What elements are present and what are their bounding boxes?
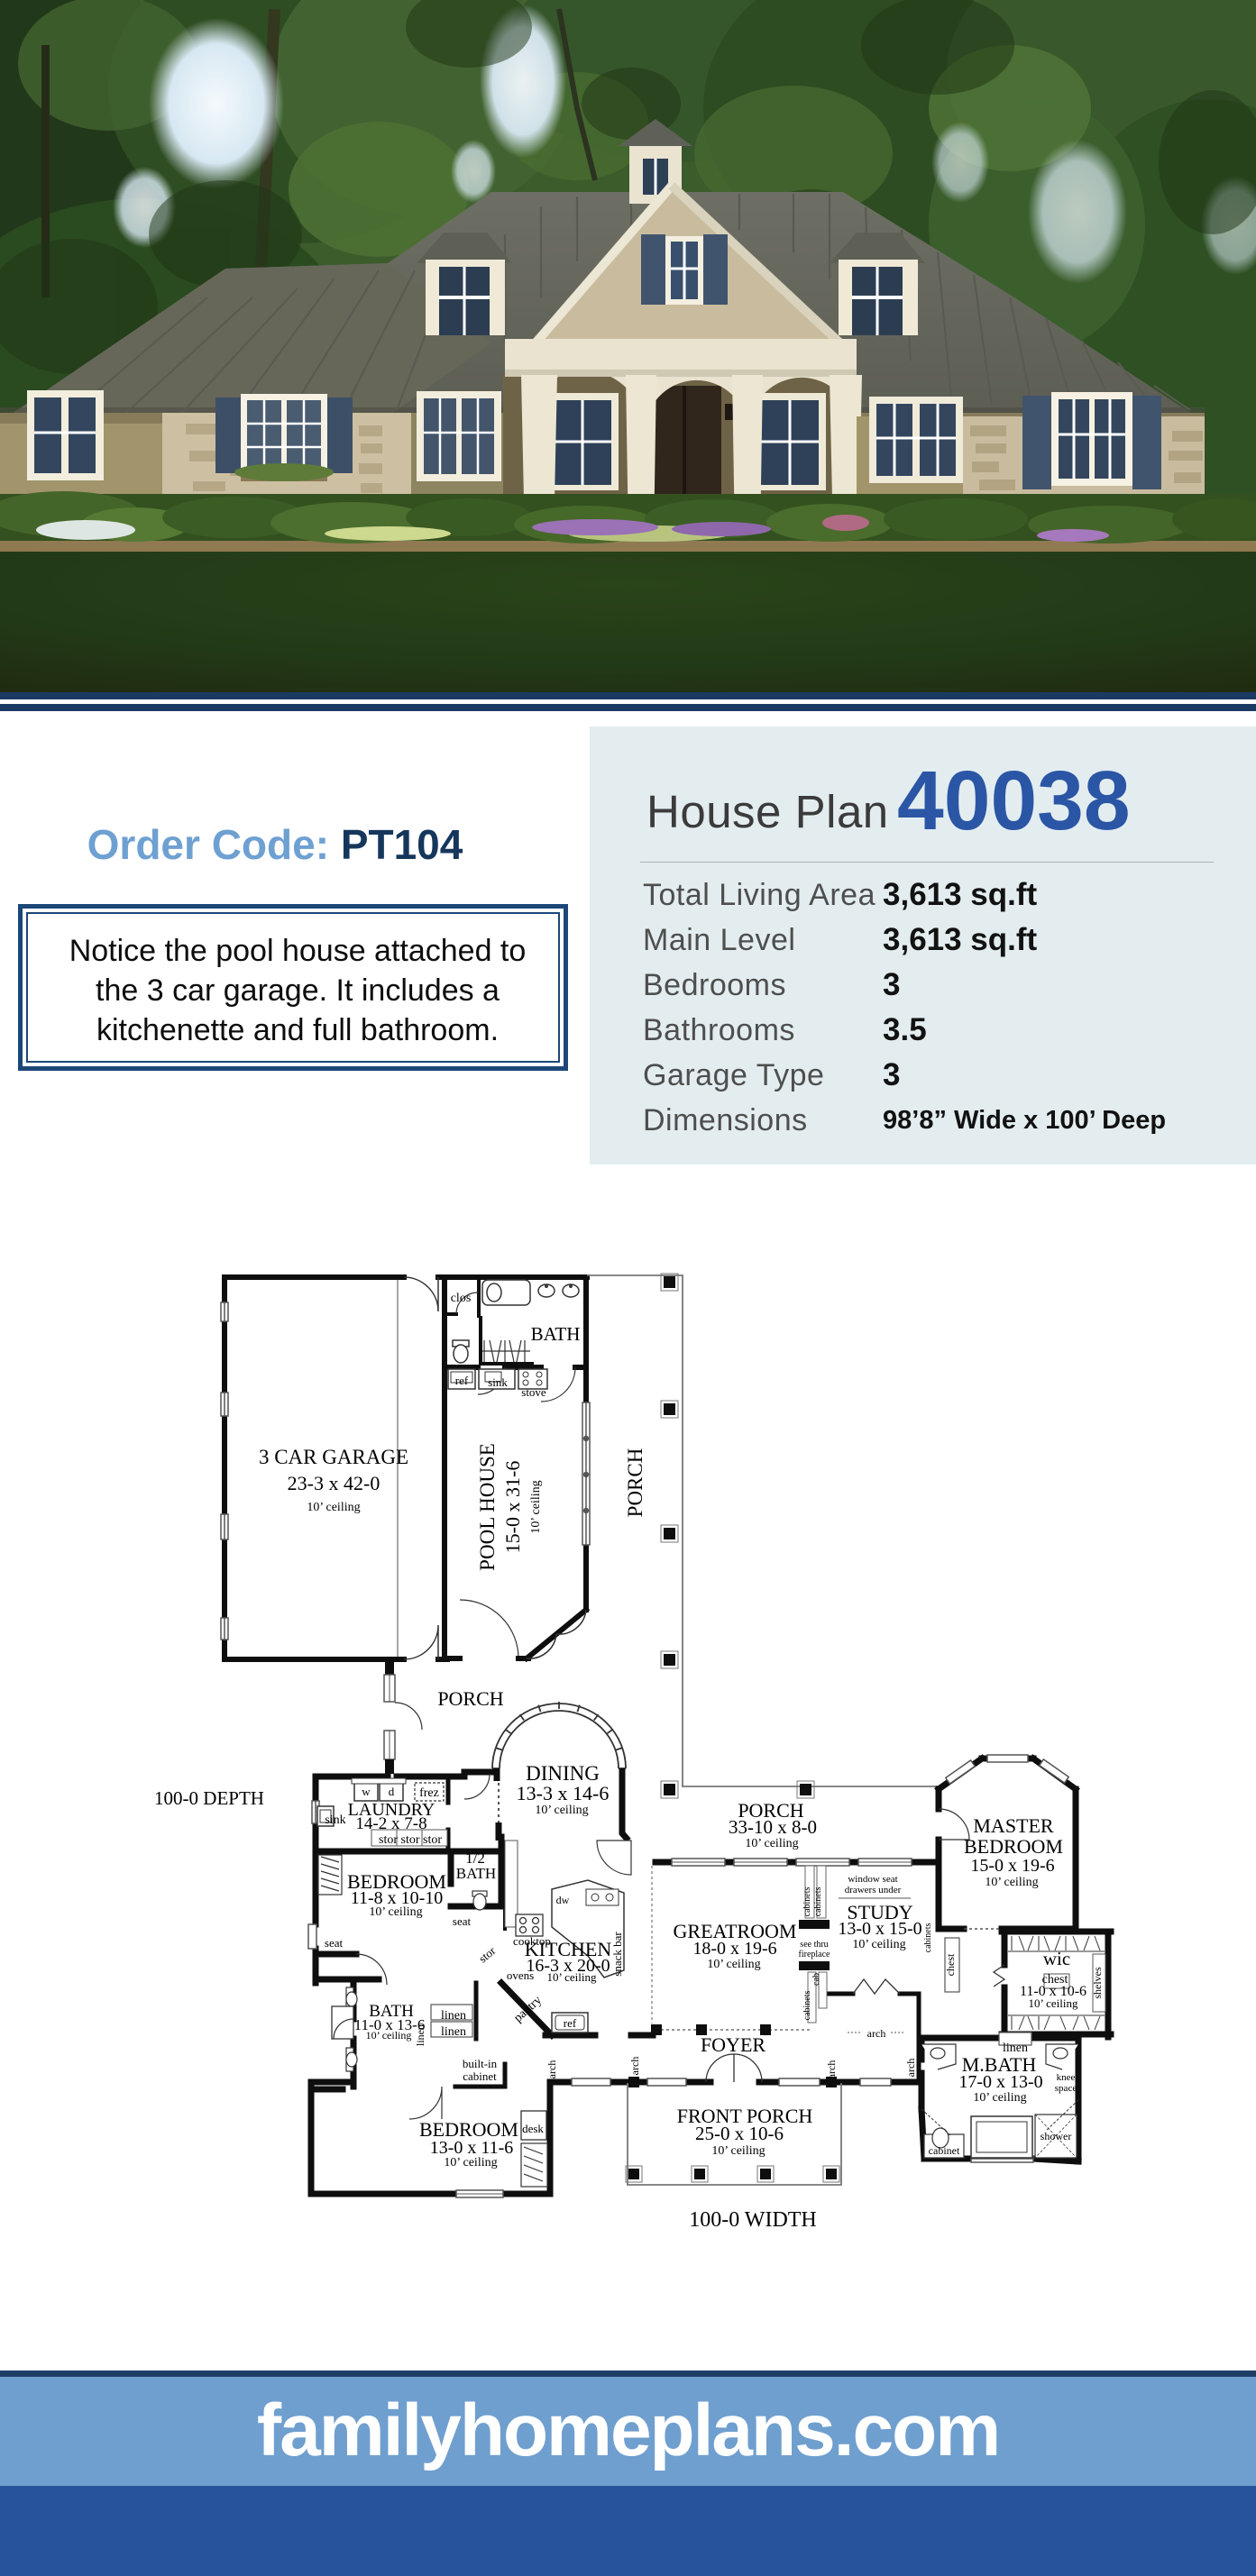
svg-text:17-0 x 13-0: 17-0 x 13-0 [958, 2072, 1042, 2092]
svg-text:linen: linen [414, 2024, 426, 2046]
svg-text:shelves: shelves [1091, 1967, 1104, 1999]
svg-text:3 CAR GARAGE: 3 CAR GARAGE [259, 1446, 408, 1468]
svg-text:wic: wic [1043, 1948, 1070, 1969]
svg-text:10’ ceiling: 10’ ceiling [1029, 1996, 1078, 2010]
svg-text:BATH: BATH [531, 1323, 581, 1345]
svg-text:arch: arch [867, 2027, 886, 2040]
svg-text:10’ ceiling: 10’ ceiling [369, 1905, 422, 1919]
svg-text:cabinet: cabinet [463, 2069, 497, 2083]
svg-text:arch: arch [904, 2059, 917, 2078]
svg-text:cabinets: cabinets [802, 1991, 812, 2021]
svg-text:10’ ceiling: 10’ ceiling [547, 1970, 597, 1984]
svg-text:linen: linen [441, 2025, 466, 2039]
svg-text:14-2 x 7-8: 14-2 x 7-8 [355, 1814, 426, 1833]
svg-text:10’ ceiling: 10’ ceiling [711, 2144, 765, 2158]
svg-text:see thru: see thru [800, 1940, 828, 1950]
svg-text:cabinets: cabinets [802, 1887, 812, 1917]
svg-text:10’ ceiling: 10’ ceiling [973, 2091, 1026, 2105]
svg-text:10’ ceiling: 10’ ceiling [307, 1501, 360, 1514]
svg-text:10’ ceiling: 10’ ceiling [444, 2156, 497, 2170]
svg-text:chest: chest [944, 1953, 957, 1976]
svg-text:stor stor stor: stor stor stor [379, 1833, 442, 1847]
svg-text:space: space [1055, 2083, 1077, 2094]
svg-text:snack bar: snack bar [610, 1932, 624, 1977]
svg-text:ovens: ovens [507, 1969, 534, 1982]
svg-text:fireplace: fireplace [799, 1950, 831, 1959]
svg-text:frez: frez [419, 1786, 439, 1800]
svg-text:BEDROOM: BEDROOM [964, 1835, 1063, 1858]
svg-text:built-in: built-in [463, 2057, 498, 2070]
svg-text:stor: stor [476, 1943, 499, 1965]
svg-text:shower: shower [1041, 2130, 1072, 2142]
svg-text:seat: seat [325, 1936, 344, 1950]
svg-text:13-0 x 15-0: 13-0 x 15-0 [838, 1919, 921, 1939]
svg-text:d: d [389, 1785, 395, 1798]
svg-text:100-0 WIDTH: 100-0 WIDTH [689, 2208, 817, 2232]
svg-text:13-0 x 11-6: 13-0 x 11-6 [430, 2138, 514, 2158]
svg-text:POOL HOUSE: POOL HOUSE [476, 1443, 499, 1571]
svg-text:cabinet: cabinet [929, 2144, 960, 2157]
svg-text:BATH: BATH [456, 1865, 496, 1882]
svg-text:dw: dw [556, 1894, 570, 1906]
svg-text:PORCH: PORCH [624, 1448, 646, 1518]
svg-text:cab: cab [811, 1973, 821, 1986]
svg-text:13-3 x 14-6: 13-3 x 14-6 [517, 1782, 610, 1804]
svg-text:10’ ceiling: 10’ ceiling [529, 1480, 543, 1533]
svg-text:w: w [362, 1785, 371, 1798]
svg-text:seat: seat [453, 1914, 472, 1928]
svg-text:window seat: window seat [848, 1874, 897, 1885]
svg-text:100-0 DEPTH: 100-0 DEPTH [154, 1787, 264, 1809]
svg-text:cabinets: cabinets [923, 1923, 933, 1953]
svg-text:10’ ceiling: 10’ ceiling [745, 1837, 798, 1850]
svg-text:PORCH: PORCH [437, 1687, 503, 1710]
svg-text:23-3 x 42-0: 23-3 x 42-0 [288, 1472, 380, 1494]
svg-text:arch: arch [628, 2057, 641, 2076]
svg-text:10’ ceiling: 10’ ceiling [985, 1876, 1038, 1889]
svg-text:MASTER: MASTER [973, 1814, 1054, 1837]
svg-text:ref: ref [564, 2016, 577, 2030]
svg-text:sink: sink [325, 1813, 345, 1827]
svg-text:15-0 x 31-6: 15-0 x 31-6 [501, 1461, 524, 1554]
svg-text:drawers under: drawers under [845, 1885, 902, 1895]
svg-text:cabinets: cabinets [813, 1887, 823, 1917]
svg-text:25-0 x 10-6: 25-0 x 10-6 [695, 2123, 784, 2144]
svg-text:stove: stove [521, 1385, 546, 1399]
svg-text:33-10 x 8-0: 33-10 x 8-0 [729, 1816, 817, 1838]
svg-text:10’ ceiling: 10’ ceiling [535, 1804, 588, 1817]
svg-text:linen: linen [441, 2009, 466, 2023]
svg-text:15-0 x 19-6: 15-0 x 19-6 [970, 1856, 1054, 1876]
svg-text:desk: desk [522, 2122, 544, 2135]
svg-text:10’ ceiling: 10’ ceiling [707, 1958, 760, 1971]
svg-text:arch: arch [545, 2060, 558, 2079]
svg-text:sink: sink [488, 1375, 508, 1389]
svg-text:knee: knee [1057, 2072, 1076, 2083]
svg-text:ref: ref [455, 1374, 469, 1387]
svg-text:arch: arch [825, 2060, 838, 2079]
svg-text:10’ ceiling: 10’ ceiling [852, 1938, 905, 1951]
svg-text:18-0 x 19-6: 18-0 x 19-6 [692, 1939, 776, 1959]
svg-text:10’ ceiling: 10’ ceiling [366, 2029, 412, 2042]
svg-text:clos: clos [451, 1292, 472, 1305]
svg-text:FOYER: FOYER [701, 2033, 766, 2056]
